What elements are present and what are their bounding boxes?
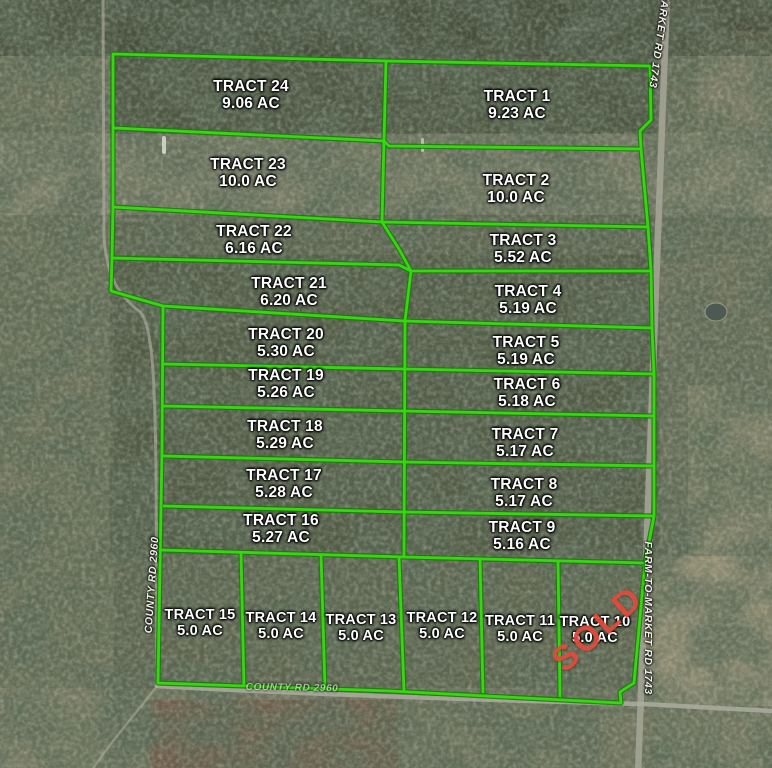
tract-9-label: TRACT 95.16 AC [489, 519, 556, 553]
label-layer: TRACT 19.23 AC TRACT 210.0 AC TRACT 35.5… [0, 0, 772, 768]
fm-rd-1743-label: FARM-TO-MARKET RD 1743 [642, 541, 654, 695]
tract-20-label: TRACT 205.30 AC [248, 326, 324, 360]
county-rd-2960-bottom-label: COUNTY RD 2960 [246, 682, 339, 695]
tract-2-label: TRACT 210.0 AC [483, 172, 550, 206]
tract-3-label: TRACT 35.52 AC [490, 232, 557, 266]
tract-16-label: TRACT 165.27 AC [243, 512, 319, 546]
tract-15-label: TRACT 155.0 AC [165, 607, 236, 639]
tract-6-label: TRACT 65.18 AC [494, 376, 561, 410]
tract-21-label: TRACT 216.20 AC [251, 275, 327, 309]
tract-11-label: TRACT 115.0 AC [485, 613, 555, 645]
plat-map: TRACT 19.23 AC TRACT 210.0 AC TRACT 35.5… [0, 0, 772, 768]
tract-18-label: TRACT 185.29 AC [247, 418, 323, 452]
tract-13-label: TRACT 135.0 AC [326, 612, 397, 644]
tract-23-label: TRACT 2310.0 AC [210, 156, 286, 190]
fm-rd-1743-top-label: FARM-TO-MARKET RD 1743 [646, 0, 679, 89]
tract-22-label: TRACT 226.16 AC [216, 223, 292, 257]
tract-8-label: TRACT 85.17 AC [491, 476, 558, 510]
county-rd-2960-left-label: COUNTY RD 2960 [143, 536, 162, 634]
tract-14-label: TRACT 145.0 AC [246, 610, 317, 642]
tract-17-label: TRACT 175.28 AC [246, 467, 322, 501]
tract-19-label: TRACT 195.26 AC [248, 367, 324, 401]
tract-1-label: TRACT 19.23 AC [484, 88, 551, 122]
tract-4-label: TRACT 45.19 AC [495, 283, 562, 317]
tract-7-label: TRACT 75.17 AC [492, 426, 559, 460]
tract-12-label: TRACT 125.0 AC [407, 610, 478, 642]
tract-24-label: TRACT 249.06 AC [213, 78, 289, 112]
tract-5-label: TRACT 55.19 AC [493, 334, 560, 368]
